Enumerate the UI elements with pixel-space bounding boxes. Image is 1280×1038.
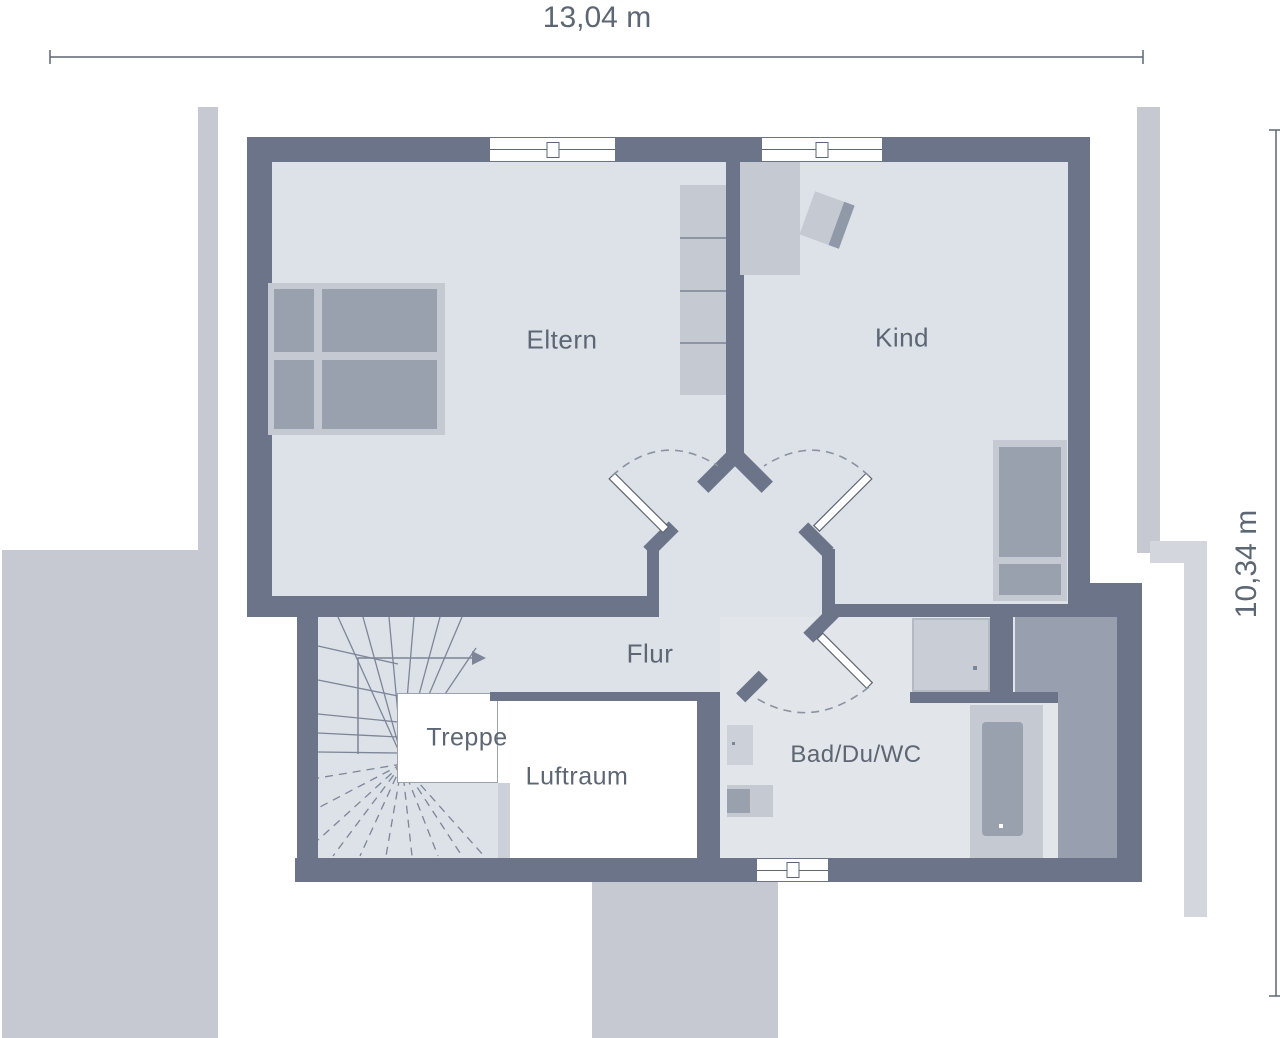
- floor-plan: 13,04 m 10,34 m Eltern Kind Flur Treppe …: [0, 0, 1280, 1038]
- door-arc-kind: [764, 450, 869, 476]
- room-label-kind: Kind: [875, 323, 929, 354]
- dimension-height-label: 10,34 m: [1230, 510, 1264, 618]
- door-leaf-eltern: [609, 473, 668, 532]
- door-swing-arcs: [612, 450, 869, 712]
- doors-and-dimensions: [0, 0, 1280, 1038]
- room-label-treppe: Treppe: [426, 724, 507, 753]
- dimension-width-label: 13,04 m: [543, 1, 651, 35]
- room-label-luftraum: Luftraum: [526, 763, 629, 792]
- room-label-eltern: Eltern: [527, 325, 598, 356]
- door-leaf-kind: [814, 473, 872, 531]
- room-label-bad: Bad/Du/WC: [790, 741, 921, 769]
- door-arc-eltern: [612, 450, 718, 476]
- door-arc-bad: [756, 687, 869, 713]
- door-leaf-bad: [817, 633, 872, 688]
- room-label-flur: Flur: [627, 639, 674, 670]
